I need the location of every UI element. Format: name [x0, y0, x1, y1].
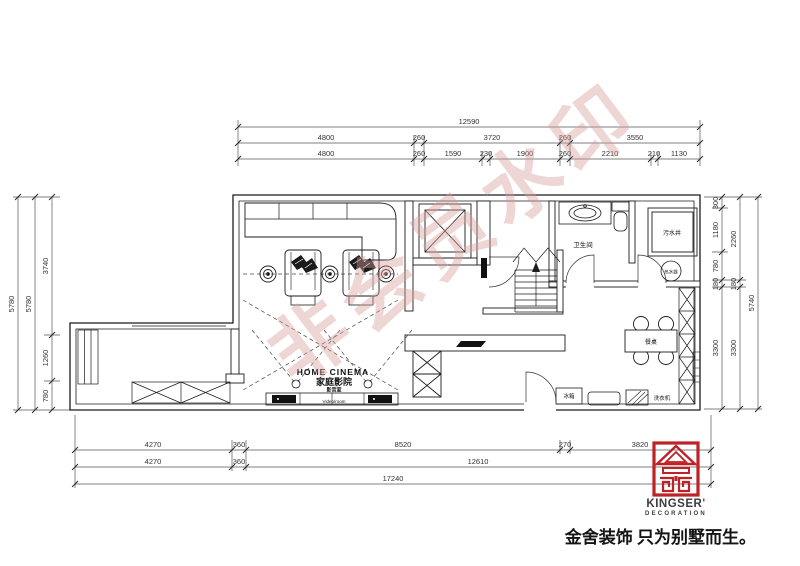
- faucet: [584, 205, 587, 208]
- dining-chair: [659, 317, 674, 332]
- walls: [70, 195, 700, 410]
- floor-plan-sheet: 12590 4800 260 3720 260 3550 4800 260 15…: [0, 0, 800, 566]
- device-knob: [373, 398, 375, 400]
- elevator-bottom-wall: [413, 258, 477, 265]
- sink-basin-inner: [574, 208, 596, 218]
- dim-label: 260: [413, 133, 426, 142]
- left-window-mullions: [85, 330, 92, 384]
- dim-label: 5780: [24, 296, 33, 313]
- dim-label: 260: [413, 149, 426, 158]
- elevator-x: [425, 210, 465, 252]
- washer-label: 洗衣机: [654, 394, 671, 402]
- partitions: [226, 201, 700, 383]
- recliner-2: [343, 250, 379, 305]
- dim-label: 1180: [711, 222, 720, 238]
- dim-label: 360: [233, 457, 246, 466]
- protrusion-right-wall: [231, 329, 239, 376]
- dim-label: 210: [648, 149, 661, 158]
- fridge-label: 冰箱: [563, 392, 575, 400]
- dim-label: 270: [559, 440, 572, 449]
- entry-door: [526, 372, 556, 402]
- counter-top: [405, 335, 565, 351]
- footrest: [349, 296, 373, 305]
- company-logo: KINGSER' DECORATION: [626, 441, 726, 517]
- stand-speaker-icon: [292, 380, 300, 388]
- brand-text: KINGSER: [646, 498, 702, 510]
- hall-door: [489, 257, 519, 287]
- inner-wall: [76, 201, 694, 404]
- right-cabinet: [679, 288, 695, 404]
- cinema-passage-opening: [232, 384, 241, 402]
- cinema-title-cn: 家庭影院: [316, 376, 352, 387]
- dim-label: 260: [559, 133, 572, 142]
- dim-label: 12590: [459, 117, 480, 126]
- toilet-tank: [612, 202, 629, 211]
- seal-center-mark: [675, 476, 678, 481]
- dim-label: 2260: [729, 231, 738, 248]
- elevator-right-wall: [477, 201, 490, 265]
- dimension-lines: [13, 120, 762, 488]
- cinema-title: HOME CINEMA 家庭影院 影音室 Video/room: [297, 367, 369, 404]
- bathroom-label: 卫生间: [573, 240, 593, 249]
- seal-spiral-right: [679, 478, 692, 491]
- dim-label: 3300: [711, 340, 720, 357]
- dining-chair: [634, 317, 649, 332]
- toilet-bowl: [614, 212, 627, 231]
- dim-label: 5740: [747, 295, 756, 312]
- recliner-body: [285, 250, 321, 296]
- hob: [456, 341, 486, 347]
- cabinet-x-pattern: [679, 288, 695, 404]
- dim-label: 300: [711, 197, 720, 210]
- kitchen-tray: [588, 392, 620, 405]
- dim-label: 2210: [602, 149, 619, 158]
- outer-wall: [70, 195, 700, 410]
- dim-label: 1900: [517, 149, 534, 158]
- brand-division: DECORATION: [626, 511, 726, 517]
- device-knob: [277, 398, 279, 400]
- bathroom: [559, 202, 629, 231]
- utility-door-opening: [638, 280, 666, 288]
- dim-label: 3300: [729, 340, 738, 357]
- stair-arrow-head: [532, 262, 540, 272]
- protrusion-area: [78, 326, 230, 403]
- footrest: [291, 296, 315, 305]
- seal-beam: [663, 468, 689, 473]
- bathroom-door: [566, 255, 594, 283]
- dim-label: 3740: [41, 258, 50, 275]
- dim-label: 1130: [671, 149, 687, 158]
- stand-speaker-icon: [364, 380, 372, 388]
- water-heater-label: 热水器: [664, 269, 678, 276]
- left-window: [78, 330, 98, 384]
- bathroom-right-wall: [629, 201, 635, 263]
- brand-apostrophe: ': [702, 498, 705, 510]
- dim-label: 12610: [468, 457, 489, 466]
- recliner-1: [285, 250, 321, 305]
- dim-label: 5780: [7, 296, 16, 313]
- entry-opening: [524, 402, 556, 412]
- sewage-well-label: 污水井: [663, 229, 681, 237]
- bathroom-left-wall: [549, 201, 555, 287]
- dim-label: 180: [711, 278, 720, 291]
- utility-door: [638, 255, 666, 283]
- sofa-cushions: [245, 203, 396, 219]
- dim-label: 8520: [395, 440, 412, 449]
- left-dim-extensions: [13, 197, 70, 410]
- dim-label: 1590: [445, 149, 462, 158]
- kitchen-counter: [405, 335, 565, 397]
- seal-spiral-left: [660, 478, 673, 491]
- elevator-left-wall: [405, 201, 413, 311]
- recliner-body: [343, 250, 379, 296]
- wall-pier: [226, 374, 244, 383]
- logo-seal-icon: [652, 441, 700, 497]
- cinema-title-en: HOME CINEMA: [297, 367, 369, 377]
- kitchen-cabinet-x: [413, 351, 441, 397]
- av-device: [272, 395, 296, 403]
- hall-south-wall: [483, 308, 563, 314]
- cinema-subtitle: 影音室: [326, 387, 341, 394]
- dim-label: 260: [559, 149, 572, 158]
- duct: [481, 258, 487, 278]
- av-device: [368, 395, 392, 403]
- storage-cabinet-x: [132, 382, 230, 403]
- dim-label: 780: [711, 260, 720, 273]
- dining-table-label: 餐桌: [645, 338, 657, 346]
- bathroom-door-opening: [566, 280, 594, 288]
- cinema-note: Video/room: [323, 399, 346, 404]
- dim-label: 4270: [145, 457, 162, 466]
- dim-label: 4800: [318, 149, 335, 158]
- elevator: [419, 204, 471, 258]
- dim-label: 3720: [484, 133, 501, 142]
- company-slogan: 金舍装饰 只为别墅而生。: [540, 523, 756, 548]
- top-dim-lines: [238, 127, 700, 159]
- washer-hatch: [628, 391, 648, 405]
- dim-label: 4270: [145, 440, 162, 449]
- dim-label: 360: [233, 440, 246, 449]
- dim-label: 1260: [41, 350, 50, 367]
- dim-label: 230: [480, 149, 493, 158]
- dim-label: 180: [729, 278, 738, 291]
- dim-label: 17240: [383, 474, 404, 483]
- dim-label: 4800: [318, 133, 335, 142]
- brand-name: KINGSER': [626, 499, 726, 510]
- dim-label: 780: [41, 390, 50, 403]
- dim-label: 3550: [627, 133, 644, 142]
- dimension-labels: 12590 4800 260 3720 260 3550 4800 260 15…: [7, 117, 756, 483]
